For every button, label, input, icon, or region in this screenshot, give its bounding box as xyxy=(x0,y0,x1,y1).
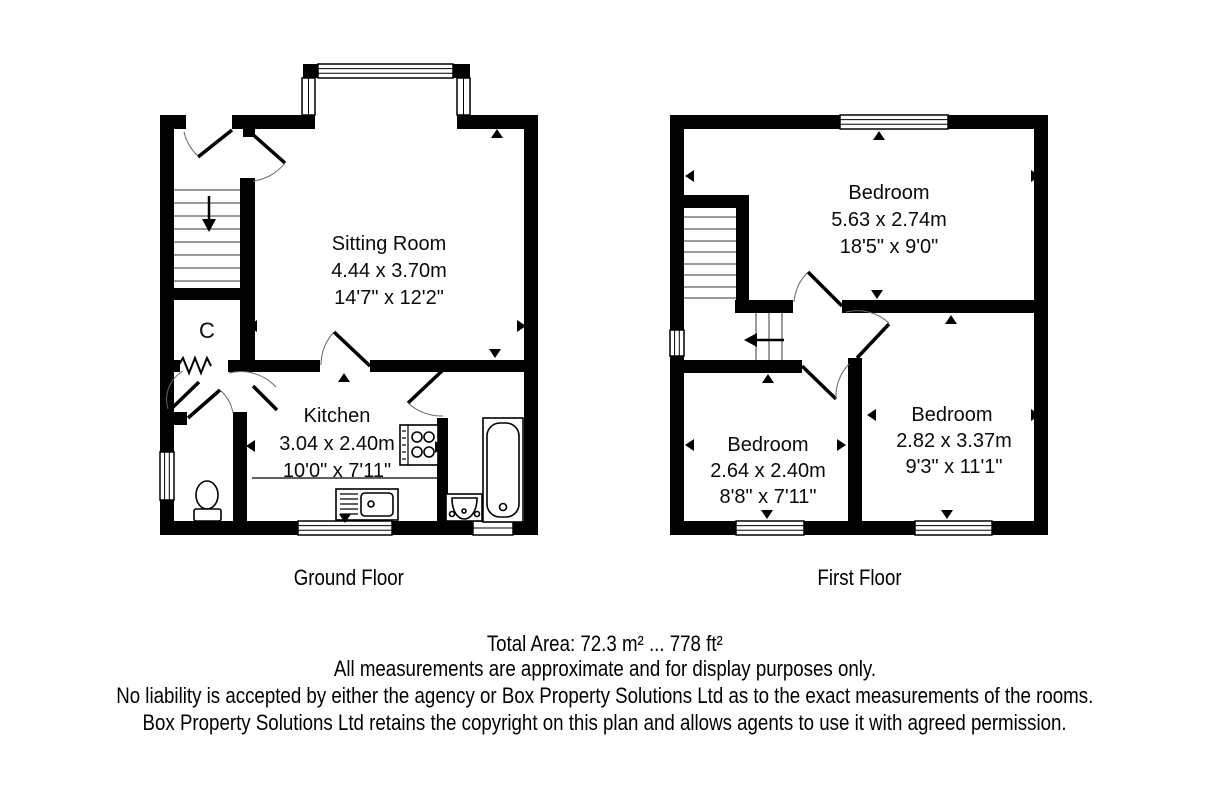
stairs-down-arrow-icon xyxy=(202,196,216,232)
disclaimer-text-1: All measurements are approximate and for… xyxy=(333,656,875,682)
sitting-room-imperial: 14'7" x 12'2" xyxy=(334,287,444,309)
disclaimer-line-2: No liability is accepted by either the a… xyxy=(0,683,1209,709)
first-floor-plan: Bedroom 5.63 x 2.74m 18'5" x 9'0" Bedroo… xyxy=(670,115,1048,535)
wall-break-icon xyxy=(178,358,211,373)
bedroom-back-left-name: Bedroom xyxy=(727,434,808,456)
toilet-icon xyxy=(194,481,221,521)
kitchen-door xyxy=(321,332,370,366)
bedroom-front-imperial: 18'5" x 9'0" xyxy=(840,236,939,258)
bay-window xyxy=(302,64,470,115)
sitting-room-door xyxy=(250,132,285,181)
basin-icon xyxy=(446,494,482,521)
bathroom-window xyxy=(473,521,513,535)
bedroom-back-left-imperial: 8'8" x 7'11" xyxy=(719,486,816,508)
wc-window xyxy=(160,452,174,500)
bedroom-back-right-door xyxy=(846,311,889,358)
ground-stairs xyxy=(174,190,240,281)
first-stairs xyxy=(684,217,784,360)
disclaimer-text-2: No liability is accepted by either the a… xyxy=(116,683,1093,709)
first-floor-caption-text: First Floor xyxy=(817,565,901,591)
first-floor-caption: First Floor xyxy=(670,565,1048,591)
kitchen-imperial: 10'0" x 7'11" xyxy=(283,460,391,482)
bedroom-front-name: Bedroom xyxy=(848,182,929,204)
kitchen-name: Kitchen xyxy=(304,405,371,427)
bedroom-front-door xyxy=(794,272,842,306)
bedroom-front-metric: 5.63 x 2.74m xyxy=(831,209,947,231)
bath-icon xyxy=(483,418,523,522)
disclaimer-line-1: All measurements are approximate and for… xyxy=(0,656,1209,682)
cupboard-label: C xyxy=(199,318,215,343)
ground-floor-plan: Sitting Room 4.44 x 3.70m 14'7" x 12'2" … xyxy=(160,64,538,535)
kitchen-window xyxy=(298,521,392,535)
disclaimer-line-3: Box Property Solutions Ltd retains the c… xyxy=(0,710,1209,736)
ground-floor-caption: Ground Floor xyxy=(160,565,538,591)
kitchen-metric: 3.04 x 2.40m xyxy=(279,433,395,455)
bedroom-back-left-metric: 2.64 x 2.40m xyxy=(710,460,826,482)
sitting-room-name: Sitting Room xyxy=(332,233,447,255)
bedroom-front-window xyxy=(840,115,948,129)
front-door xyxy=(184,130,232,157)
bedroom-back-left-window xyxy=(736,521,804,535)
hall-doors xyxy=(167,371,277,418)
bedroom-back-left-door xyxy=(802,364,849,399)
disclaimer-text-3: Box Property Solutions Ltd retains the c… xyxy=(142,710,1066,736)
ground-floor-caption-text: Ground Floor xyxy=(294,565,404,591)
total-area-line: Total Area: 72.3 m² ... 778 ft² xyxy=(0,631,1209,657)
landing-window xyxy=(670,330,684,356)
floorplan-page: Sitting Room 4.44 x 3.70m 14'7" x 12'2" … xyxy=(0,0,1209,800)
bathroom-door xyxy=(408,370,443,416)
total-area-text: Total Area: 72.3 m² ... 778 ft² xyxy=(487,631,723,657)
sitting-room-metric: 4.44 x 3.70m xyxy=(331,260,447,282)
bedroom-back-right-name: Bedroom xyxy=(911,404,992,426)
hob-icon xyxy=(400,425,438,465)
stairs-direction-arrow-icon xyxy=(744,333,784,347)
bedroom-back-right-imperial: 9'3" x 11'1" xyxy=(905,456,1002,478)
bedroom-back-right-window xyxy=(915,521,992,535)
bedroom-back-right-metric: 2.82 x 3.37m xyxy=(896,430,1012,452)
